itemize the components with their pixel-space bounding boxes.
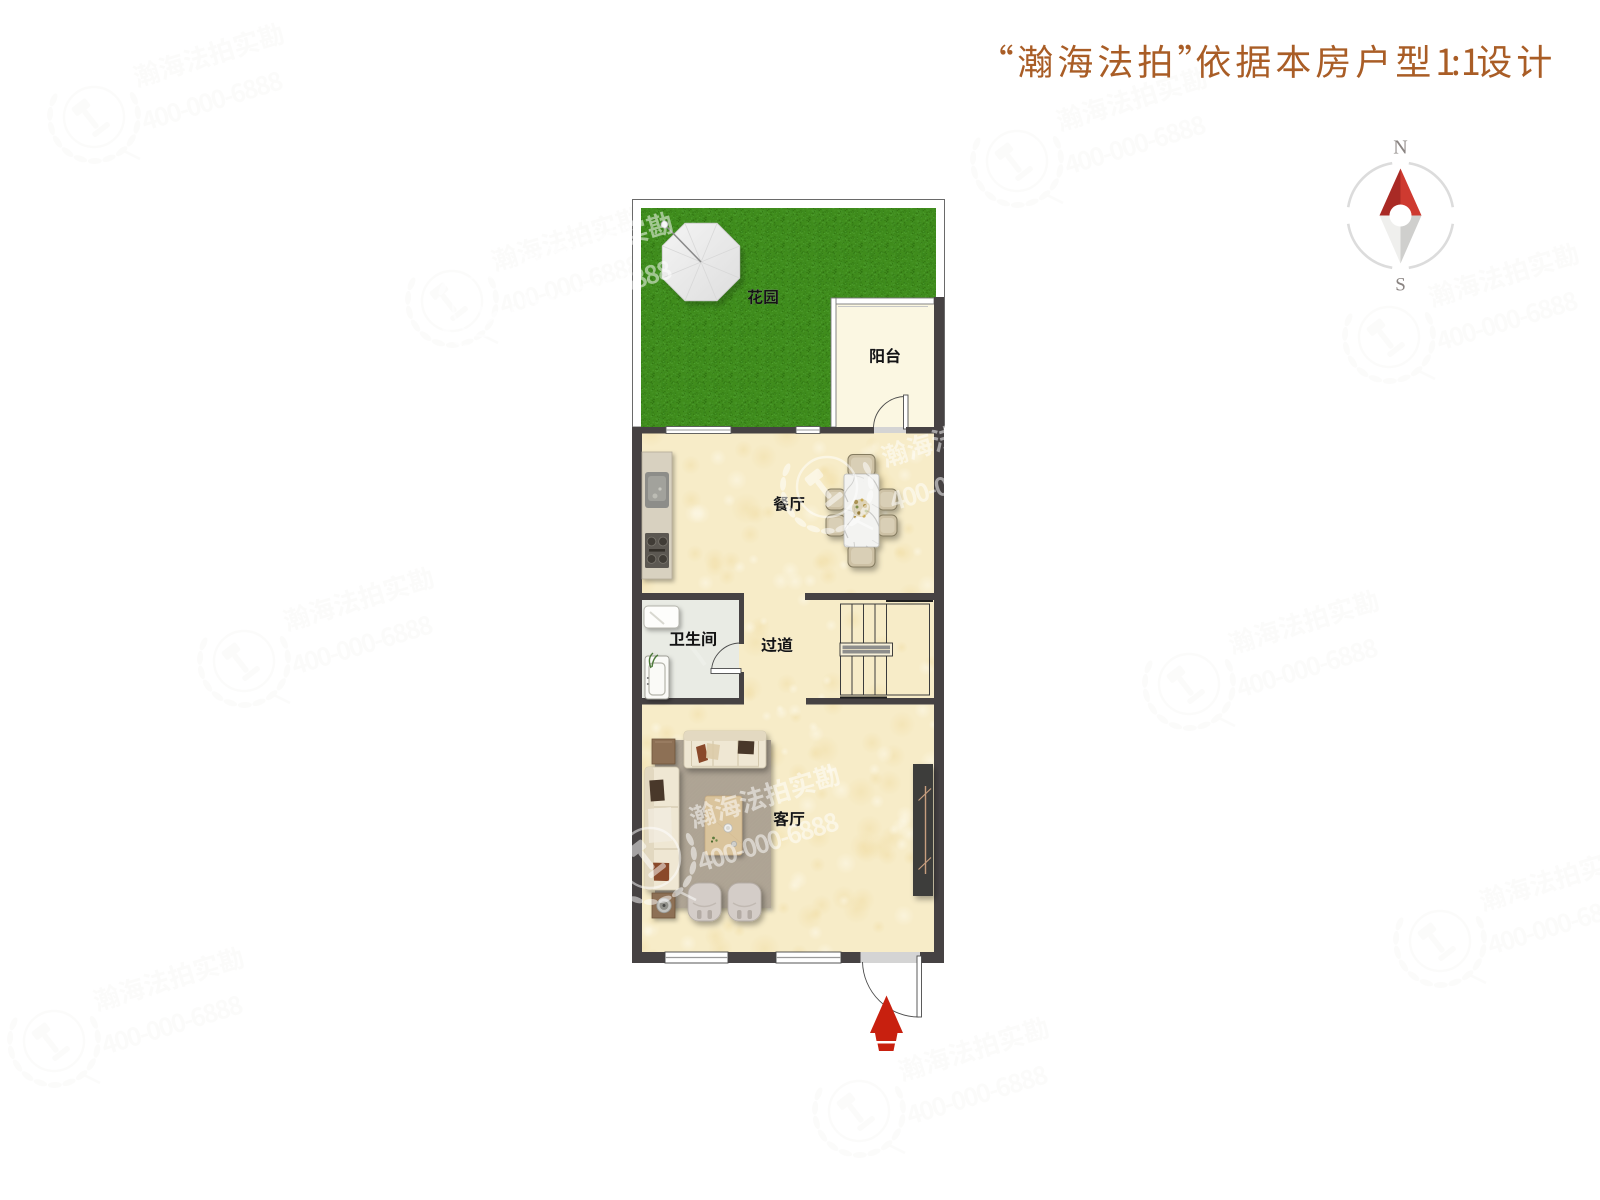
svg-text:S: S: [1395, 275, 1406, 296]
svg-text:N: N: [1393, 137, 1407, 159]
